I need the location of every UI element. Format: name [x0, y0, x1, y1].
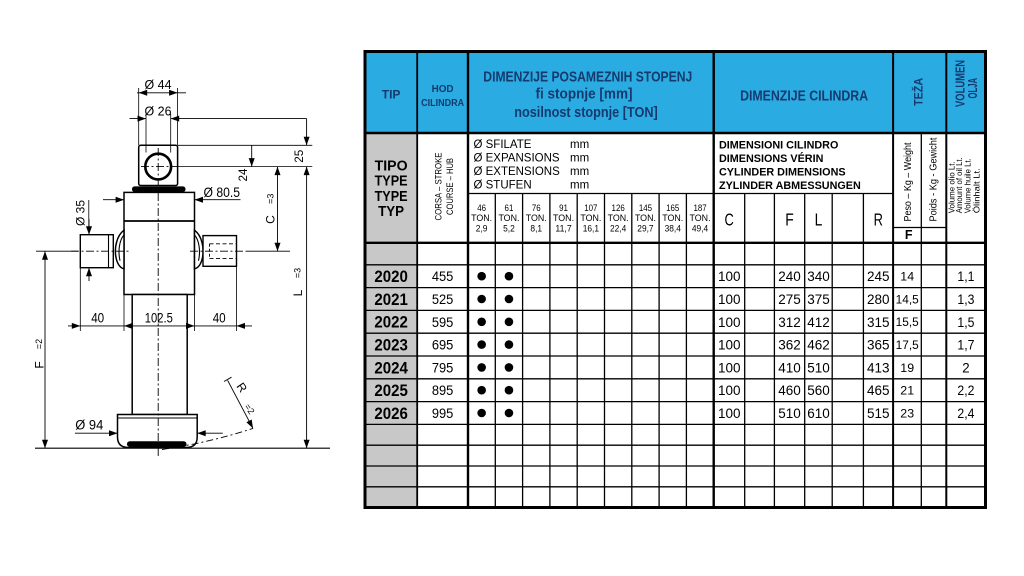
svg-text:L: L [291, 289, 305, 296]
svg-text:C: C [264, 215, 278, 224]
svg-text:mm: mm [570, 166, 589, 178]
svg-text:102.5: 102.5 [145, 310, 173, 325]
svg-text:40: 40 [213, 310, 226, 325]
svg-text:610: 610 [807, 406, 830, 422]
svg-text:412: 412 [807, 315, 830, 331]
svg-text:fi stopnje [mm]: fi stopnje [mm] [536, 87, 633, 103]
svg-text:L: L [815, 209, 823, 229]
svg-text:DIMENSIONI CILINDRO: DIMENSIONI CILINDRO [719, 140, 838, 152]
svg-text:=3: =3 [266, 194, 276, 204]
svg-text:100: 100 [718, 383, 741, 399]
svg-text:1,3: 1,3 [957, 291, 974, 307]
svg-text:R: R [874, 209, 883, 229]
svg-text:362: 362 [778, 338, 801, 354]
svg-text:1,1: 1,1 [957, 268, 974, 284]
svg-text:340: 340 [807, 269, 830, 285]
svg-text:8,1: 8,1 [530, 224, 542, 235]
svg-text:2021: 2021 [374, 291, 408, 309]
svg-text:24: 24 [236, 168, 250, 181]
svg-text:TYPE: TYPE [375, 174, 408, 190]
svg-text:2,2: 2,2 [957, 382, 974, 398]
svg-text:Ø SFILATE: Ø SFILATE [474, 139, 532, 151]
svg-text:HOD: HOD [432, 83, 454, 95]
svg-text:Ø 35: Ø 35 [74, 200, 88, 226]
svg-text:695: 695 [432, 338, 454, 354]
svg-text:1,5: 1,5 [957, 314, 974, 330]
svg-text:Ø 80.5: Ø 80.5 [204, 184, 241, 200]
svg-text:29,7: 29,7 [637, 224, 653, 235]
svg-text:510: 510 [807, 360, 830, 376]
svg-text:17,5: 17,5 [896, 338, 919, 352]
svg-text:455: 455 [432, 269, 454, 285]
svg-text:14: 14 [900, 270, 914, 284]
svg-text:Ø 44: Ø 44 [145, 77, 172, 92]
svg-text:100: 100 [718, 338, 741, 354]
svg-text:5,2: 5,2 [503, 224, 515, 235]
svg-text:mm: mm [570, 153, 589, 165]
svg-text:2022: 2022 [374, 314, 408, 332]
svg-text:25: 25 [292, 149, 306, 162]
svg-text:560: 560 [807, 383, 830, 399]
svg-text:TIPO: TIPO [375, 158, 408, 174]
svg-text:nosilnost stopnje [TON]: nosilnost stopnje [TON] [514, 105, 658, 121]
svg-text:413: 413 [867, 360, 890, 376]
svg-text:Ø 26: Ø 26 [145, 104, 172, 119]
svg-text:Poids - Kg - Gewicht: Poids - Kg - Gewicht [928, 137, 939, 221]
svg-text:OLJA: OLJA [965, 78, 980, 99]
svg-text:Ø 94: Ø 94 [75, 418, 103, 433]
svg-text:15,5: 15,5 [896, 315, 919, 329]
svg-text:410: 410 [778, 360, 801, 376]
svg-text:mm: mm [570, 180, 589, 192]
svg-text:2020: 2020 [374, 268, 408, 286]
svg-text:100: 100 [718, 360, 741, 376]
svg-text:315: 315 [867, 315, 890, 331]
svg-text:DIMENZIJE POSAMEZNIH STOPENJ: DIMENZIJE POSAMEZNIH STOPENJ [483, 68, 692, 85]
svg-text:21: 21 [900, 384, 914, 398]
svg-text:312: 312 [778, 315, 801, 331]
svg-text:F: F [905, 228, 913, 242]
svg-text:CORSA – STROKE: CORSA – STROKE [433, 153, 444, 221]
svg-text:Peso – Kg – Weight: Peso – Kg – Weight [903, 142, 914, 221]
svg-text:2024: 2024 [374, 359, 408, 377]
svg-text:515: 515 [867, 406, 890, 422]
svg-text:49,4: 49,4 [692, 224, 708, 235]
svg-text:280: 280 [867, 292, 890, 308]
svg-text:mm: mm [570, 139, 589, 151]
svg-text:23: 23 [900, 406, 914, 420]
svg-text:COURSE – HUB: COURSE – HUB [445, 158, 456, 215]
svg-text:460: 460 [778, 383, 801, 399]
svg-text:595: 595 [432, 315, 454, 331]
svg-text:19: 19 [900, 361, 914, 375]
svg-text:Ø STUFEN: Ø STUFEN [474, 180, 532, 192]
svg-text:TYPE: TYPE [375, 189, 408, 205]
svg-text:2,9: 2,9 [476, 224, 488, 235]
svg-text:CYLINDER DIMENSIONS: CYLINDER DIMENSIONS [719, 167, 846, 179]
svg-text:DIMENSIONS VÉRIN: DIMENSIONS VÉRIN [719, 152, 824, 165]
svg-text:TYP: TYP [378, 204, 404, 220]
svg-text:2025: 2025 [374, 382, 408, 400]
svg-text:275: 275 [778, 292, 801, 308]
svg-text:375: 375 [807, 292, 830, 308]
svg-text:ZYLINDER ABMESSUNGEN: ZYLINDER ABMESSUNGEN [719, 180, 861, 192]
svg-text:2,4: 2,4 [957, 405, 974, 421]
svg-text:995: 995 [432, 406, 454, 422]
svg-text:795: 795 [432, 360, 454, 376]
svg-text:11,7: 11,7 [555, 224, 571, 235]
svg-text:525: 525 [432, 292, 454, 308]
svg-text:2026: 2026 [374, 405, 408, 423]
svg-text:CILINDRA: CILINDRA [421, 97, 464, 109]
svg-text:Ø EXTENSIONS: Ø EXTENSIONS [474, 166, 561, 178]
svg-text:TEŽA: TEŽA [910, 78, 925, 106]
svg-text:510: 510 [778, 406, 801, 422]
svg-text:240: 240 [778, 269, 801, 285]
svg-text:1,7: 1,7 [957, 337, 974, 353]
svg-text:DIMENZIJE CILINDRA: DIMENZIJE CILINDRA [740, 89, 869, 105]
svg-text:245: 245 [867, 269, 890, 285]
svg-text:38,4: 38,4 [665, 224, 681, 235]
svg-text:365: 365 [867, 338, 890, 354]
svg-text:Volume huile Lt.: Volume huile Lt. [963, 158, 972, 213]
svg-text:14,5: 14,5 [896, 292, 919, 306]
svg-text:F: F [785, 209, 794, 229]
svg-text:TIP: TIP [382, 88, 401, 102]
svg-text:=2: =2 [34, 339, 44, 349]
svg-text:465: 465 [867, 383, 890, 399]
svg-text:100: 100 [718, 292, 741, 308]
svg-text:100: 100 [718, 315, 741, 331]
svg-text:22,4: 22,4 [610, 224, 626, 235]
svg-text:=3: =3 [293, 268, 303, 278]
svg-text:16,1: 16,1 [583, 224, 599, 235]
svg-text:100: 100 [718, 269, 741, 285]
svg-text:C: C [725, 209, 734, 229]
svg-text:2023: 2023 [374, 337, 408, 355]
svg-text:F: F [32, 361, 46, 368]
svg-text:Ölinhalt Lt.: Ölinhalt Lt. [972, 168, 981, 213]
svg-text:2: 2 [962, 359, 970, 375]
svg-text:895: 895 [432, 383, 454, 399]
svg-text:Ø EXPANSIONS: Ø EXPANSIONS [474, 153, 560, 165]
svg-text:40: 40 [91, 310, 104, 325]
svg-text:462: 462 [807, 338, 830, 354]
svg-text:100: 100 [718, 406, 741, 422]
